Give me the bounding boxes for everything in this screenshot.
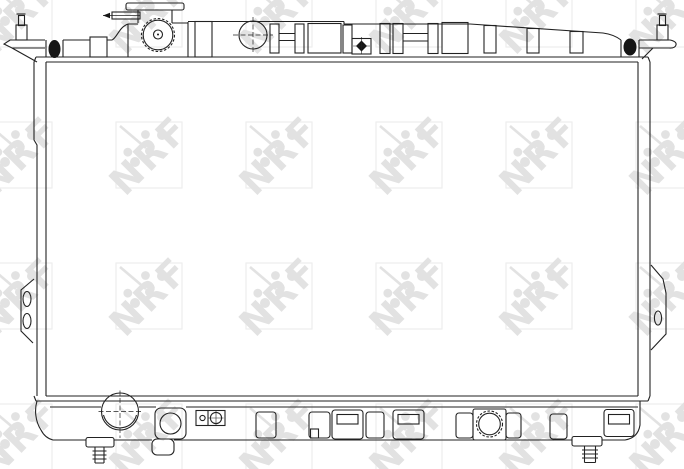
- rubber-grommet-right: [624, 39, 637, 56]
- rubber-grommet-left: [49, 40, 61, 58]
- radiator-technical-drawing: NRF: [0, 0, 684, 469]
- radiator-diagram: NRF: [0, 0, 684, 469]
- watermark-background: [0, 0, 684, 469]
- cap-center-dot: [157, 34, 159, 36]
